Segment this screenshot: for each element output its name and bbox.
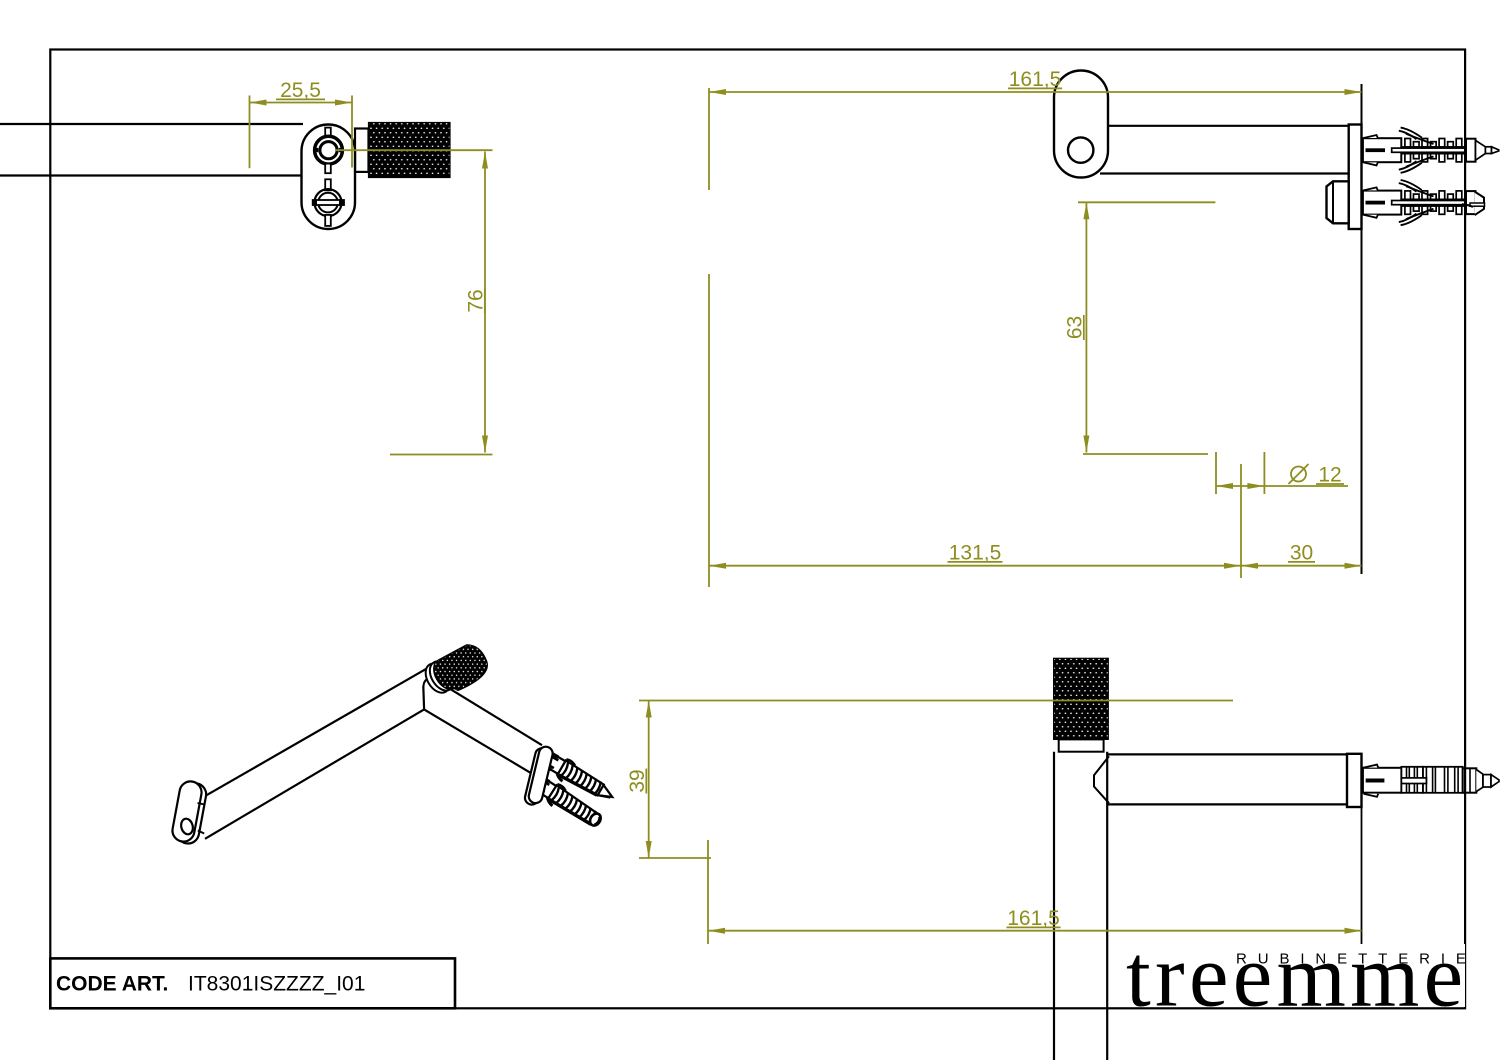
svg-text:30: 30 <box>1290 542 1313 565</box>
svg-text:CODE ART.: CODE ART. <box>56 973 168 996</box>
svg-text:IT8301ISZZZZ_I01: IT8301ISZZZZ_I01 <box>188 973 365 996</box>
svg-text:131,5: 131,5 <box>949 542 1002 565</box>
svg-text:treemme: treemme <box>1126 928 1467 1026</box>
svg-text:12: 12 <box>1318 464 1341 487</box>
svg-text:161,5: 161,5 <box>1007 907 1060 930</box>
